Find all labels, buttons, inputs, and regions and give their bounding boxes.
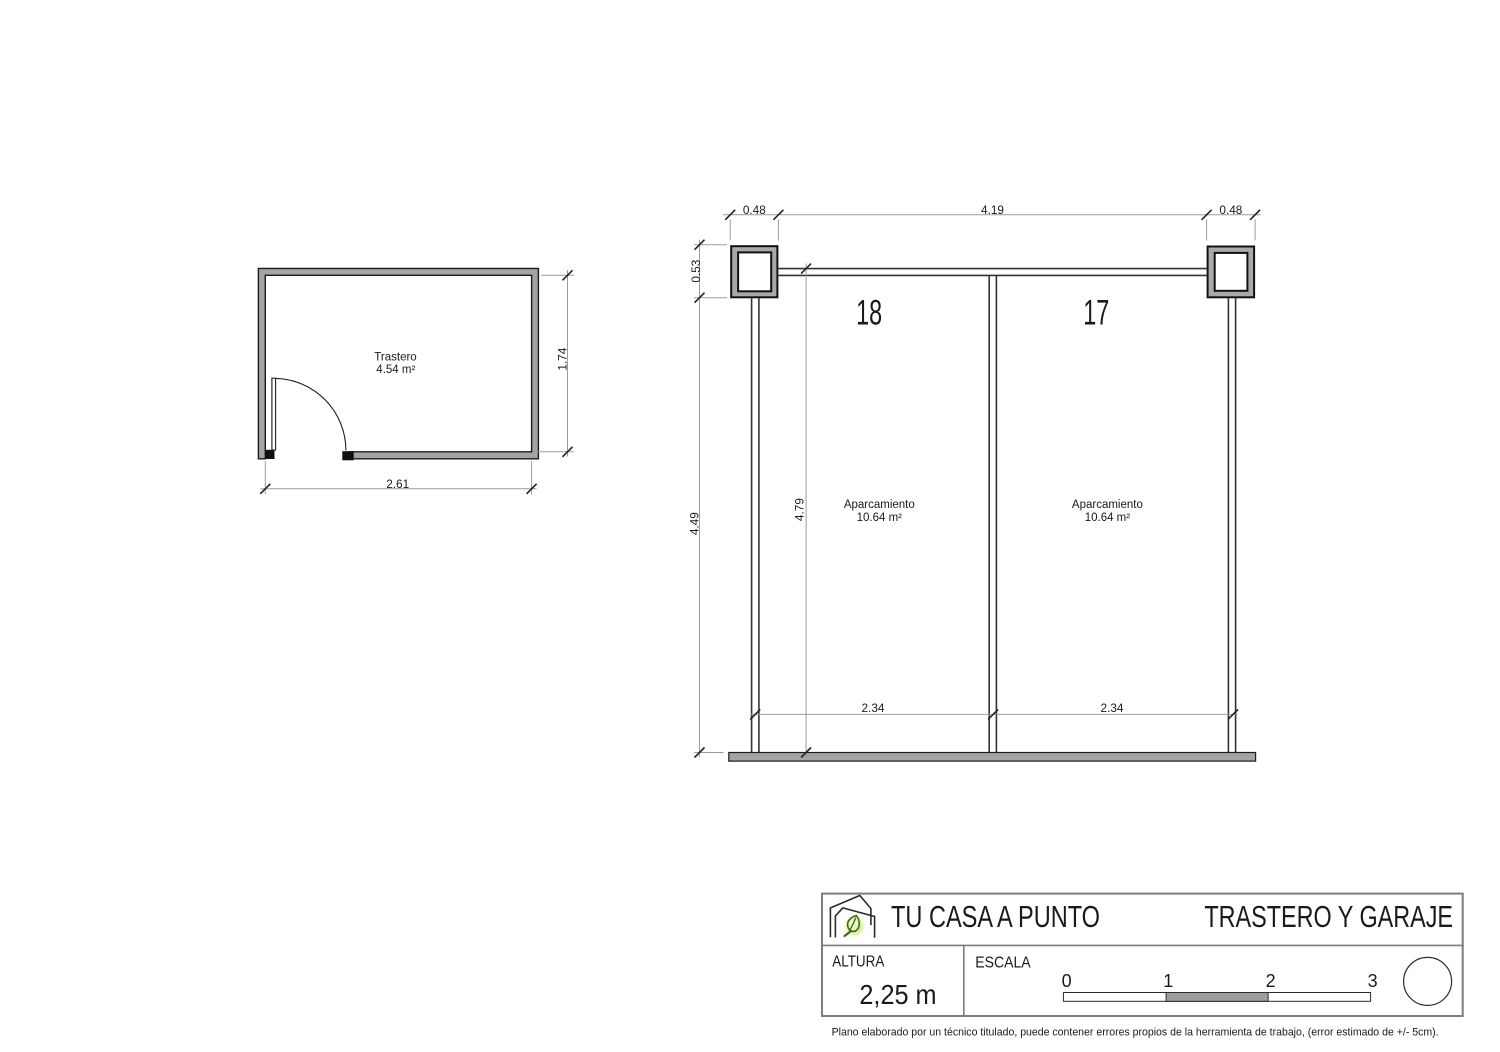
svg-text:2.61: 2.61 xyxy=(386,477,409,491)
svg-text:Aparcamiento: Aparcamiento xyxy=(844,499,915,511)
svg-text:2.34: 2.34 xyxy=(1101,701,1124,715)
svg-text:4.79: 4.79 xyxy=(793,498,807,521)
svg-text:ESCALA: ESCALA xyxy=(975,955,1031,972)
svg-text:3: 3 xyxy=(1368,971,1378,991)
svg-text:2,25 m: 2,25 m xyxy=(859,979,936,1010)
svg-text:18: 18 xyxy=(856,294,882,333)
svg-text:10.64 m²: 10.64 m² xyxy=(1085,512,1131,524)
svg-text:Aparcamiento: Aparcamiento xyxy=(1072,499,1143,511)
svg-text:4.54 m²: 4.54 m² xyxy=(376,364,415,376)
svg-text:0.48: 0.48 xyxy=(1219,203,1242,217)
svg-text:TU CASA A PUNTO: TU CASA A PUNTO xyxy=(891,899,1100,934)
svg-text:2: 2 xyxy=(1266,971,1276,991)
svg-text:4.19: 4.19 xyxy=(981,203,1004,217)
svg-text:2.34: 2.34 xyxy=(862,701,885,715)
svg-text:0: 0 xyxy=(1062,971,1072,991)
svg-text:0.53: 0.53 xyxy=(689,259,703,282)
svg-text:Plano elaborado por un técnico: Plano elaborado por un técnico titulado,… xyxy=(832,1026,1439,1038)
svg-text:1.74: 1.74 xyxy=(555,347,569,370)
svg-text:Trastero: Trastero xyxy=(374,351,416,363)
svg-text:1: 1 xyxy=(1163,971,1173,991)
svg-text:TRASTERO Y GARAJE: TRASTERO Y GARAJE xyxy=(1204,899,1453,934)
svg-text:4.49: 4.49 xyxy=(688,512,702,535)
svg-text:ALTURA: ALTURA xyxy=(832,954,884,971)
svg-text:10.64 m²: 10.64 m² xyxy=(857,512,903,524)
svg-text:0.48: 0.48 xyxy=(743,203,766,217)
svg-text:17: 17 xyxy=(1083,294,1109,333)
